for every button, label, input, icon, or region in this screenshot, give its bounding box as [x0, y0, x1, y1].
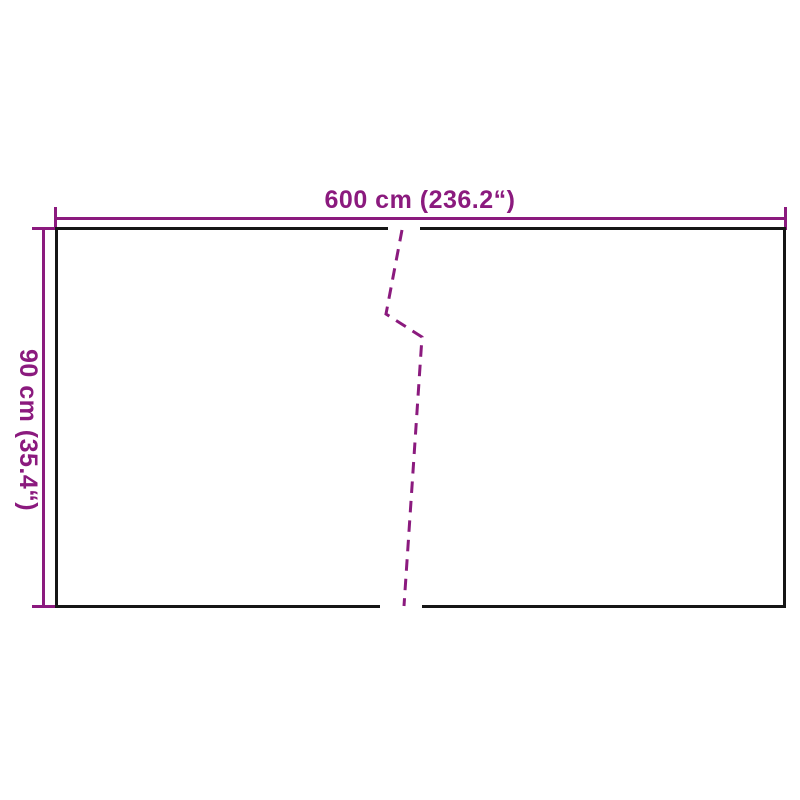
dimension-diagram: 600 cm (236.2“) 90 cm (35.4“): [0, 0, 800, 800]
dimension-diagram-canvas: 600 cm (236.2“) 90 cm (35.4“): [0, 0, 800, 800]
product-outline: [57, 227, 785, 608]
height-dimension: 90 cm (35.4“): [14, 228, 56, 607]
width-dimension: 600 cm (236.2“): [55, 186, 786, 230]
width-dimension-label: 600 cm (236.2“): [325, 186, 516, 214]
height-dimension-label: 90 cm (35.4“): [14, 349, 42, 511]
length-break-dashed-line: [386, 230, 422, 606]
